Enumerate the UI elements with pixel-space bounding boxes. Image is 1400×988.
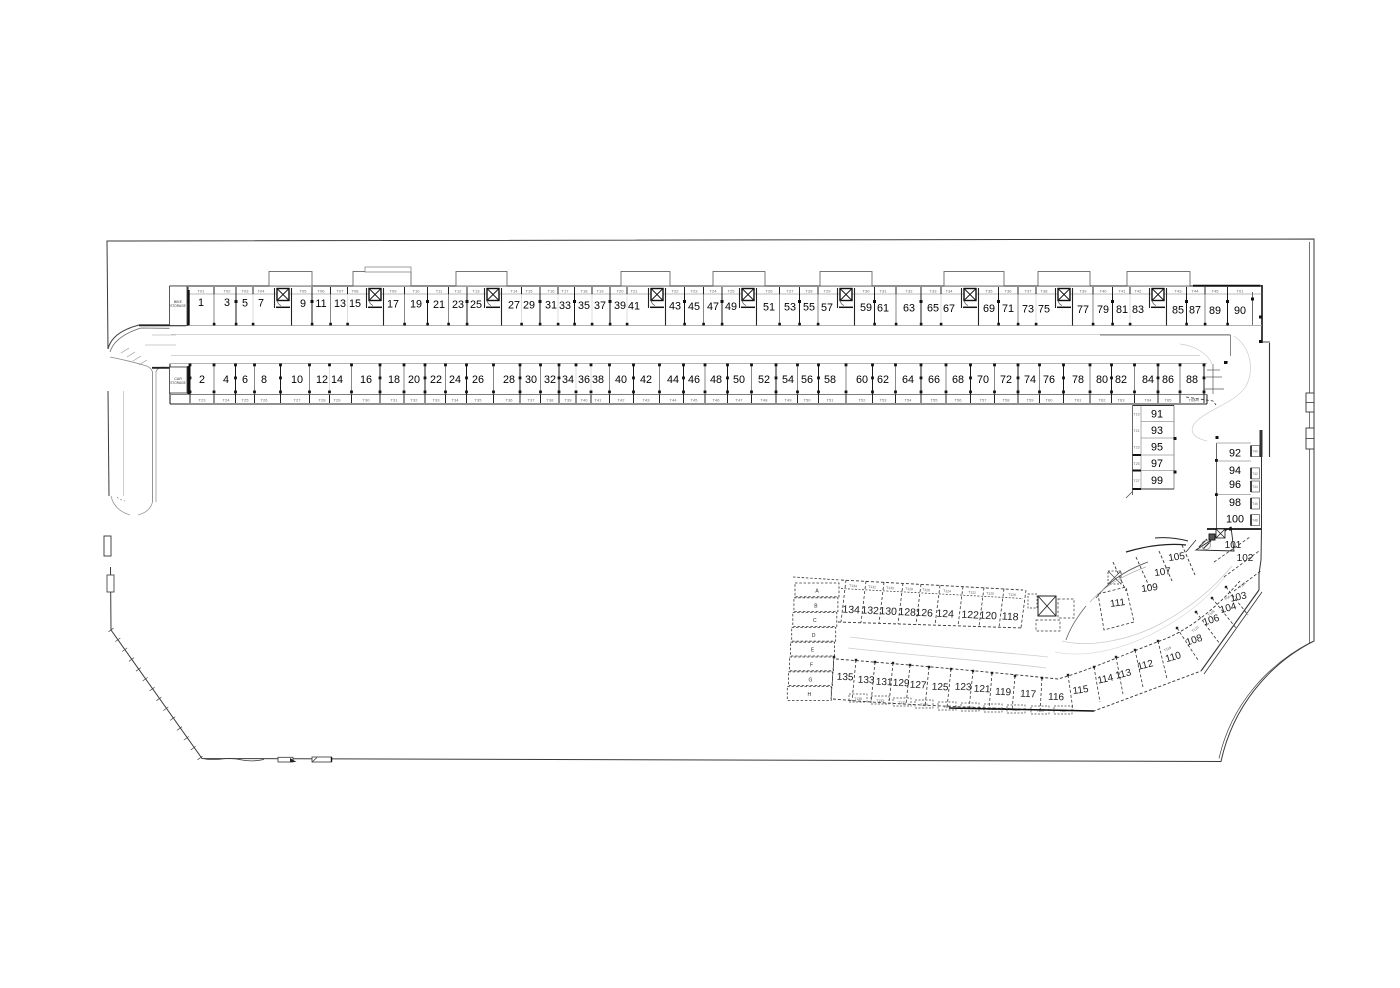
svg-text:43: 43 [669,301,681,313]
svg-text:T61: T61 [1075,398,1083,403]
svg-text:T40: T40 [581,398,589,403]
svg-text:54: 54 [782,374,794,386]
svg-text:T42: T42 [618,398,626,403]
svg-text:T22: T22 [672,289,680,294]
svg-text:65: 65 [927,303,939,315]
svg-text:55: 55 [803,302,815,314]
svg-text:93: 93 [1151,425,1163,437]
svg-text:T27: T27 [1133,479,1139,483]
svg-text:T40: T40 [1252,450,1258,454]
svg-text:74: 74 [1024,374,1036,386]
svg-text:87: 87 [1189,305,1201,317]
svg-text:18: 18 [388,374,400,386]
svg-text:T27: T27 [294,398,302,403]
svg-text:24: 24 [449,374,461,386]
svg-text:42: 42 [640,374,652,386]
svg-text:60: 60 [856,374,868,386]
svg-text:T07: T07 [337,289,345,294]
svg-text:T10: T10 [413,289,421,294]
svg-text:119: 119 [995,687,1012,699]
svg-text:128: 128 [898,606,916,619]
svg-text:49: 49 [725,301,737,313]
svg-text:T33: T33 [433,398,441,403]
svg-text:T28: T28 [319,398,327,403]
svg-text:T38: T38 [547,398,555,403]
svg-text:T46: T46 [713,398,721,403]
svg-text:T38: T38 [1041,289,1049,294]
svg-text:101: 101 [1225,540,1242,551]
svg-text:117: 117 [1020,689,1037,701]
svg-text:T18: T18 [581,289,589,294]
svg-text:77: 77 [1077,304,1089,316]
svg-text:T54: T54 [905,398,913,403]
svg-text:26: 26 [472,374,484,386]
svg-text:T37: T37 [528,398,536,403]
svg-text:72: 72 [1000,374,1012,386]
svg-text:69: 69 [983,303,995,315]
svg-text:23: 23 [452,299,464,311]
svg-text:T48: T48 [761,398,769,403]
svg-text:T124: T124 [943,589,951,593]
svg-text:94: 94 [1229,465,1241,477]
svg-text:T12: T12 [455,289,463,294]
svg-text:131: 131 [876,677,894,689]
svg-text:45: 45 [688,301,700,313]
svg-text:T133: T133 [876,699,884,703]
svg-text:91: 91 [1151,409,1163,421]
svg-text:98: 98 [1229,497,1241,509]
svg-text:34: 34 [562,374,574,386]
svg-text:52: 52 [758,374,770,386]
svg-text:T33: T33 [930,289,938,294]
svg-text:G: G [808,677,812,683]
svg-text:67: 67 [943,303,955,315]
svg-text:T14: T14 [511,289,519,294]
svg-text:T132: T132 [868,585,876,589]
svg-text:38: 38 [592,374,604,386]
svg-text:85: 85 [1172,305,1184,317]
svg-text:135: 135 [837,672,855,684]
svg-text:T44: T44 [670,398,678,403]
svg-text:T05: T05 [300,289,308,294]
svg-text:46: 46 [688,374,700,386]
svg-text:51: 51 [763,301,775,313]
svg-text:132: 132 [861,604,879,617]
svg-text:T23: T23 [199,398,207,403]
svg-text:T51: T51 [827,398,835,403]
svg-text:T23: T23 [691,289,699,294]
svg-text:99: 99 [1151,475,1163,487]
svg-text:35: 35 [578,300,590,312]
svg-text:T42: T42 [1135,289,1143,294]
svg-text:T03: T03 [242,289,250,294]
svg-text:57: 57 [821,302,833,314]
svg-text:9: 9 [300,298,306,310]
svg-text:1: 1 [198,297,204,309]
svg-text:T13: T13 [473,289,481,294]
svg-text:70: 70 [977,374,989,386]
svg-text:T26: T26 [261,398,269,403]
svg-text:40: 40 [615,374,627,386]
svg-text:T29: T29 [824,289,832,294]
svg-text:13: 13 [334,298,346,310]
svg-text:T41: T41 [1119,289,1127,294]
svg-text:T62: T62 [1099,398,1107,403]
svg-text:16: 16 [360,374,372,386]
svg-text:92: 92 [1229,448,1241,460]
svg-text:T08: T08 [352,289,360,294]
svg-text:T56: T56 [955,398,963,403]
svg-text:STORAGE: STORAGE [170,304,186,308]
svg-text:80: 80 [1096,374,1108,386]
svg-text:T42: T42 [1252,472,1258,476]
svg-text:71: 71 [1002,303,1014,315]
svg-text:17: 17 [387,299,399,311]
svg-text:T64: T64 [1145,398,1153,403]
svg-text:T26: T26 [766,289,774,294]
svg-text:5: 5 [242,297,248,309]
svg-text:T134: T134 [849,584,857,588]
svg-text:T11: T11 [436,289,443,294]
svg-text:T40: T40 [1100,289,1108,294]
svg-text:T59: T59 [1027,398,1035,403]
svg-text:118: 118 [1001,611,1019,624]
svg-text:79: 79 [1097,304,1109,316]
svg-text:15: 15 [349,298,361,310]
svg-text:59: 59 [860,302,872,314]
svg-text:126: 126 [915,607,933,620]
svg-text:56: 56 [801,374,813,386]
svg-text:95: 95 [1151,442,1163,454]
svg-text:T129: T129 [920,703,928,707]
svg-text:50: 50 [733,374,745,386]
svg-text:21: 21 [433,299,445,311]
svg-text:T130: T130 [886,586,894,590]
svg-text:20: 20 [408,374,420,386]
svg-text:62: 62 [877,374,889,386]
svg-text:T52: T52 [859,398,867,403]
svg-text:22: 22 [430,374,442,386]
svg-text:T34: T34 [452,398,460,403]
svg-text:T49: T49 [785,398,793,403]
svg-text:14: 14 [331,374,343,386]
svg-text:123: 123 [955,682,973,694]
svg-text:3: 3 [224,297,230,309]
svg-text:84: 84 [1142,374,1154,386]
svg-text:116: 116 [1048,692,1065,704]
svg-text:64: 64 [902,374,914,386]
svg-text:121: 121 [974,684,992,696]
svg-text:T24: T24 [223,398,231,403]
svg-text:T45: T45 [1212,289,1220,294]
svg-text:T60: T60 [1046,398,1054,403]
svg-text:T01: T01 [198,289,206,294]
svg-text:76: 76 [1043,374,1055,386]
svg-text:T06: T06 [318,289,326,294]
svg-text:T128: T128 [905,587,913,591]
svg-text:T21: T21 [631,289,639,294]
svg-text:25: 25 [470,299,482,311]
svg-text:4: 4 [223,374,229,386]
svg-text:28: 28 [503,374,515,386]
svg-text:96: 96 [1229,479,1241,491]
svg-text:T39: T39 [1080,289,1088,294]
svg-text:102: 102 [1237,553,1254,564]
svg-text:T46: T46 [1252,502,1258,506]
svg-text:T21: T21 [1133,429,1139,433]
svg-text:75: 75 [1038,304,1050,316]
svg-text:73: 73 [1022,303,1034,315]
svg-text:125: 125 [932,682,950,694]
svg-text:T30: T30 [363,398,371,403]
svg-text:T29: T29 [334,398,342,403]
svg-text:T58: T58 [1003,398,1011,403]
svg-text:T19: T19 [597,289,605,294]
svg-text:T19: T19 [1133,413,1139,417]
svg-text:T50: T50 [804,398,812,403]
svg-text:120: 120 [979,610,997,623]
svg-text:30: 30 [525,374,537,386]
svg-text:T118: T118 [1008,593,1016,597]
svg-text:68: 68 [952,374,964,386]
svg-text:8: 8 [261,374,267,386]
svg-text:T135: T135 [854,697,862,701]
svg-text:83: 83 [1132,304,1144,316]
svg-text:36: 36 [578,374,590,386]
svg-text:39: 39 [614,300,626,312]
svg-text:10: 10 [291,374,303,386]
svg-text:111: 111 [1109,597,1126,610]
svg-text:T120: T120 [986,591,994,595]
svg-text:129: 129 [893,678,911,690]
svg-text:134: 134 [842,604,860,617]
svg-text:T31: T31 [391,398,399,403]
svg-text:100: 100 [1226,514,1244,526]
svg-text:27: 27 [508,299,520,311]
svg-text:T53: T53 [880,398,888,403]
svg-text:31: 31 [545,300,557,312]
svg-text:124: 124 [936,608,954,621]
svg-text:T45: T45 [691,398,699,403]
svg-text:T48: T48 [1252,519,1258,523]
svg-text:T32: T32 [411,398,419,403]
svg-text:97: 97 [1151,458,1163,470]
svg-text:T44: T44 [1192,289,1200,294]
svg-text:T23: T23 [1133,446,1139,450]
svg-text:T24: T24 [710,289,718,294]
svg-text:78: 78 [1072,374,1084,386]
svg-text:32: 32 [544,374,556,386]
svg-text:T55: T55 [931,398,939,403]
svg-text:T01: T01 [1237,289,1245,294]
svg-text:T41: T41 [595,398,603,403]
svg-text:53: 53 [784,302,796,314]
svg-text:63: 63 [903,303,915,315]
svg-text:STORAGE: STORAGE [170,381,186,385]
svg-text:11: 11 [315,298,326,310]
svg-text:T122: T122 [968,590,976,594]
svg-text:T63: T63 [1118,398,1126,403]
svg-text:127: 127 [910,680,928,692]
svg-text:130: 130 [879,605,897,618]
svg-text:82: 82 [1115,374,1127,386]
svg-text:T43: T43 [643,398,651,403]
svg-text:6: 6 [242,374,248,386]
svg-text:T36: T36 [1193,398,1199,403]
svg-text:89: 89 [1209,305,1221,317]
svg-text:T25: T25 [728,289,736,294]
svg-text:T34: T34 [946,289,954,294]
svg-text:T36: T36 [506,398,514,403]
svg-text:T35: T35 [475,398,483,403]
svg-text:T04: T04 [258,289,266,294]
svg-text:T65: T65 [1165,398,1173,403]
svg-text:T16: T16 [548,289,556,294]
svg-text:D: D [812,633,816,639]
svg-text:19: 19 [410,299,422,311]
svg-text:81: 81 [1116,304,1128,316]
svg-text:T20: T20 [617,289,625,294]
svg-text:T27: T27 [787,289,795,294]
svg-text:86: 86 [1162,374,1174,386]
svg-text:61: 61 [877,302,889,314]
svg-text:T37: T37 [1025,289,1033,294]
svg-text:47: 47 [707,301,719,313]
svg-text:33: 33 [559,300,571,312]
svg-text:T28: T28 [806,289,814,294]
svg-text:T25: T25 [1133,462,1139,466]
svg-text:37: 37 [594,300,606,312]
svg-text:T15: T15 [526,289,534,294]
svg-text:T35: T35 [986,289,994,294]
svg-text:2: 2 [199,374,205,386]
svg-text:T44: T44 [1252,485,1258,489]
svg-text:T30: T30 [863,289,871,294]
svg-text:88: 88 [1186,374,1198,386]
svg-text:F: F [810,663,813,669]
svg-text:H: H [807,692,811,698]
svg-text:T43: T43 [1175,289,1183,294]
svg-text:12: 12 [316,374,328,386]
svg-text:7: 7 [258,298,264,310]
svg-text:90: 90 [1234,305,1246,317]
svg-text:41: 41 [628,300,640,312]
svg-text:48: 48 [710,374,722,386]
svg-text:58: 58 [824,374,836,386]
svg-text:T36: T36 [1005,289,1013,294]
svg-text:115: 115 [1072,684,1090,697]
svg-text:T57: T57 [980,398,988,403]
svg-text:66: 66 [928,374,940,386]
svg-text:T32: T32 [906,289,914,294]
svg-text:T39: T39 [565,398,573,403]
svg-text:T131: T131 [898,701,906,705]
svg-text:29: 29 [523,300,535,312]
svg-text:C: C [813,618,817,624]
svg-text:133: 133 [858,675,876,687]
svg-text:T126: T126 [922,588,930,592]
svg-text:T47: T47 [736,398,744,403]
svg-text:T02: T02 [224,289,232,294]
svg-text:T09: T09 [390,289,398,294]
svg-text:122: 122 [961,609,979,622]
svg-text:T31: T31 [880,289,888,294]
svg-text:T17: T17 [562,289,570,294]
svg-text:T25: T25 [242,398,250,403]
svg-text:44: 44 [667,374,679,386]
